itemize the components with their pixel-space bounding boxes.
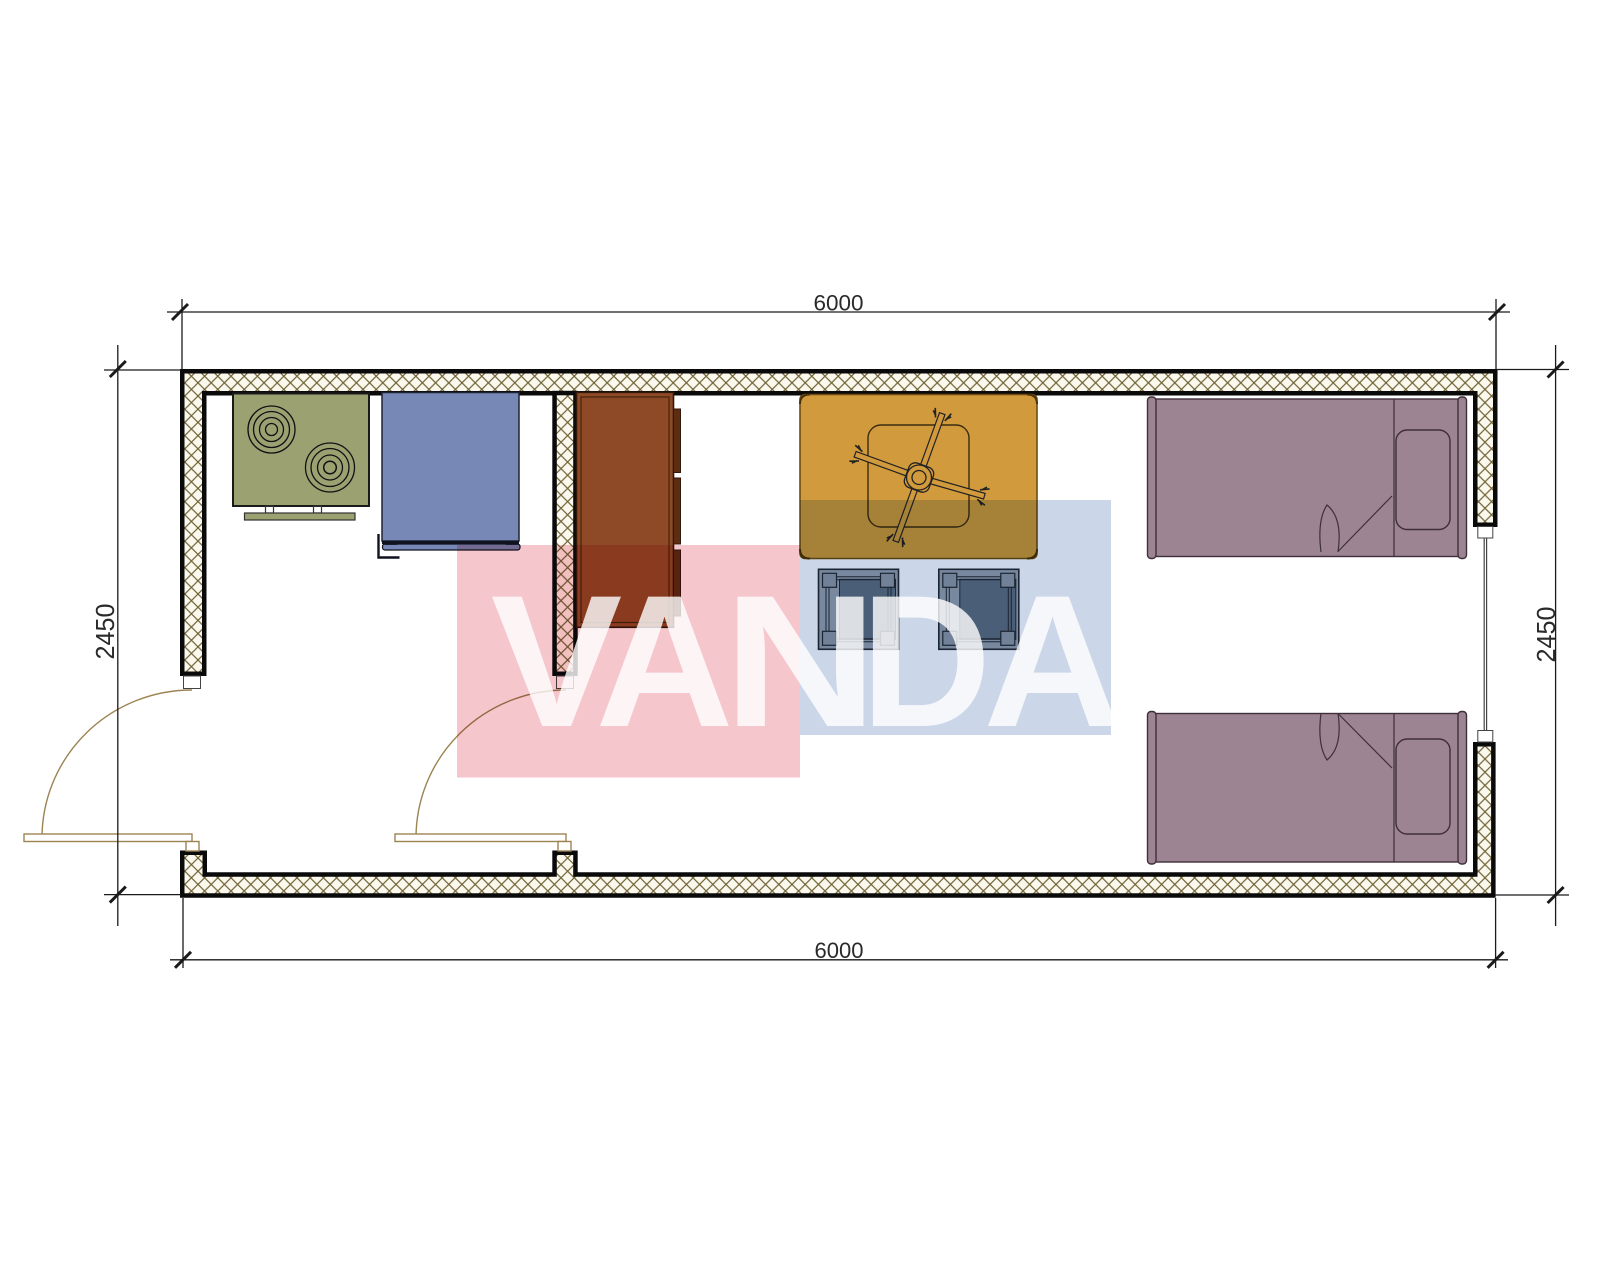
svg-text:N: N: [723, 556, 878, 766]
svg-text:2450: 2450: [92, 604, 120, 660]
svg-text:A: A: [595, 557, 733, 767]
svg-text:A: A: [983, 557, 1121, 767]
svg-text:6000: 6000: [815, 938, 864, 963]
svg-text:6000: 6000: [814, 291, 864, 316]
svg-text:D: D: [861, 557, 991, 767]
svg-text:2450: 2450: [1533, 607, 1561, 663]
